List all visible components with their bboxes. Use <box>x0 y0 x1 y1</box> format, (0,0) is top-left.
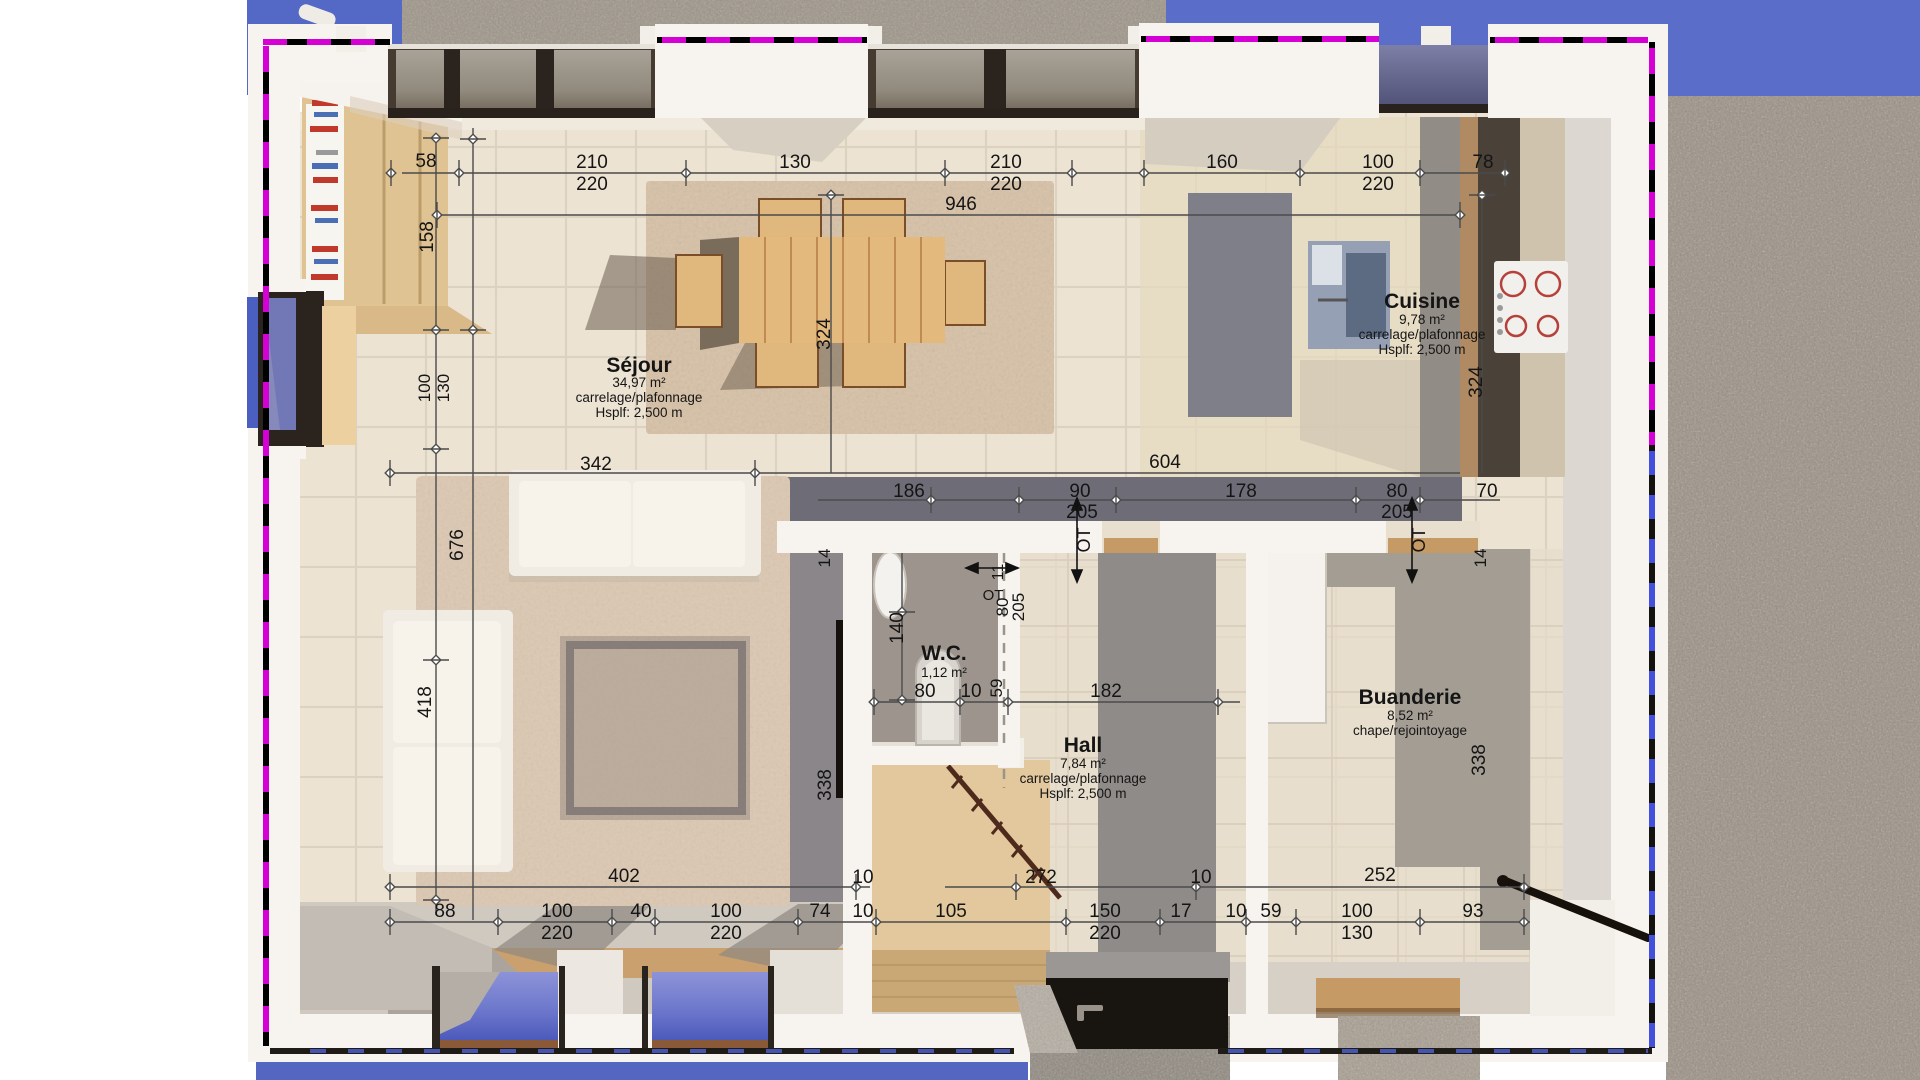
svg-text:10: 10 <box>1190 867 1211 888</box>
svg-text:W.C.: W.C. <box>921 642 967 665</box>
svg-text:100: 100 <box>710 901 742 922</box>
svg-text:220: 220 <box>541 923 573 944</box>
svg-text:105: 105 <box>935 901 967 922</box>
svg-text:130: 130 <box>434 374 453 402</box>
svg-text:220: 220 <box>710 923 742 944</box>
svg-text:7,84 m²: 7,84 m² <box>1060 756 1106 771</box>
svg-text:186: 186 <box>893 481 925 502</box>
svg-text:272: 272 <box>1025 867 1057 888</box>
svg-text:Cuisine: Cuisine <box>1384 290 1460 313</box>
svg-text:8,52 m²: 8,52 m² <box>1387 708 1433 723</box>
svg-text:324: 324 <box>1466 366 1487 398</box>
svg-text:OT: OT <box>1074 527 1094 552</box>
svg-text:946: 946 <box>945 194 977 215</box>
svg-text:160: 160 <box>1206 152 1238 173</box>
svg-text:14: 14 <box>1471 549 1490 568</box>
svg-text:carrelage/plafonnage: carrelage/plafonnage <box>576 390 703 405</box>
svg-text:11: 11 <box>990 564 1007 581</box>
svg-text:10: 10 <box>852 867 873 888</box>
svg-text:Buanderie: Buanderie <box>1359 686 1462 709</box>
svg-text:9,78 m²: 9,78 m² <box>1399 312 1445 327</box>
svg-text:10: 10 <box>852 901 873 922</box>
svg-text:80: 80 <box>914 681 935 702</box>
svg-text:150: 150 <box>1089 901 1121 922</box>
svg-text:carrelage/plafonnage: carrelage/plafonnage <box>1020 771 1147 786</box>
svg-text:342: 342 <box>580 454 612 475</box>
svg-text:604: 604 <box>1149 452 1181 473</box>
svg-text:59: 59 <box>1260 901 1281 922</box>
svg-text:Séjour: Séjour <box>606 354 671 377</box>
svg-text:70: 70 <box>1476 481 1497 502</box>
svg-text:carrelage/plafonnage: carrelage/plafonnage <box>1359 327 1486 342</box>
svg-text:182: 182 <box>1090 681 1122 702</box>
svg-text:40: 40 <box>630 901 651 922</box>
svg-text:OT: OT <box>983 587 1004 604</box>
svg-text:210: 210 <box>990 152 1022 173</box>
svg-text:93: 93 <box>1462 901 1483 922</box>
svg-text:324: 324 <box>814 318 835 350</box>
svg-text:178: 178 <box>1225 481 1257 502</box>
svg-text:210: 210 <box>576 152 608 173</box>
svg-text:10: 10 <box>960 681 981 702</box>
svg-text:Hsplf: 2,500 m: Hsplf: 2,500 m <box>1039 786 1126 801</box>
svg-text:59: 59 <box>987 679 1006 698</box>
svg-text:676: 676 <box>447 529 468 561</box>
svg-text:88: 88 <box>434 901 455 922</box>
svg-text:338: 338 <box>1469 744 1490 776</box>
svg-text:205: 205 <box>1009 593 1028 621</box>
svg-text:205: 205 <box>1066 502 1098 523</box>
svg-text:205: 205 <box>1381 502 1413 523</box>
svg-text:90: 90 <box>1069 481 1090 502</box>
svg-text:Hsplf: 2,500 m: Hsplf: 2,500 m <box>595 405 682 420</box>
svg-text:140: 140 <box>887 612 908 644</box>
svg-text:158: 158 <box>417 221 438 253</box>
svg-text:78: 78 <box>1472 152 1493 173</box>
svg-text:418: 418 <box>415 686 436 718</box>
svg-text:130: 130 <box>779 152 811 173</box>
svg-text:chape/rejointoyage: chape/rejointoyage <box>1353 723 1467 738</box>
svg-text:220: 220 <box>1362 174 1394 195</box>
svg-text:58: 58 <box>415 151 436 172</box>
svg-text:17: 17 <box>1170 901 1191 922</box>
svg-text:34,97 m²: 34,97 m² <box>612 375 666 390</box>
svg-text:80: 80 <box>1386 481 1407 502</box>
svg-text:402: 402 <box>608 866 640 887</box>
svg-text:338: 338 <box>815 769 836 801</box>
svg-text:252: 252 <box>1364 865 1396 886</box>
svg-text:Hsplf: 2,500 m: Hsplf: 2,500 m <box>1378 342 1465 357</box>
svg-text:74: 74 <box>809 901 831 922</box>
svg-text:100: 100 <box>1362 152 1394 173</box>
svg-text:100: 100 <box>415 374 434 402</box>
svg-text:100: 100 <box>541 901 573 922</box>
svg-text:1,12 m²: 1,12 m² <box>921 665 967 680</box>
svg-text:14: 14 <box>815 549 834 568</box>
svg-text:220: 220 <box>1089 923 1121 944</box>
svg-text:10: 10 <box>1225 901 1246 922</box>
svg-text:130: 130 <box>1341 923 1373 944</box>
svg-text:220: 220 <box>576 174 608 195</box>
svg-text:OT: OT <box>1409 527 1429 552</box>
svg-text:100: 100 <box>1341 901 1373 922</box>
svg-text:Hall: Hall <box>1064 734 1103 757</box>
svg-text:220: 220 <box>990 174 1022 195</box>
